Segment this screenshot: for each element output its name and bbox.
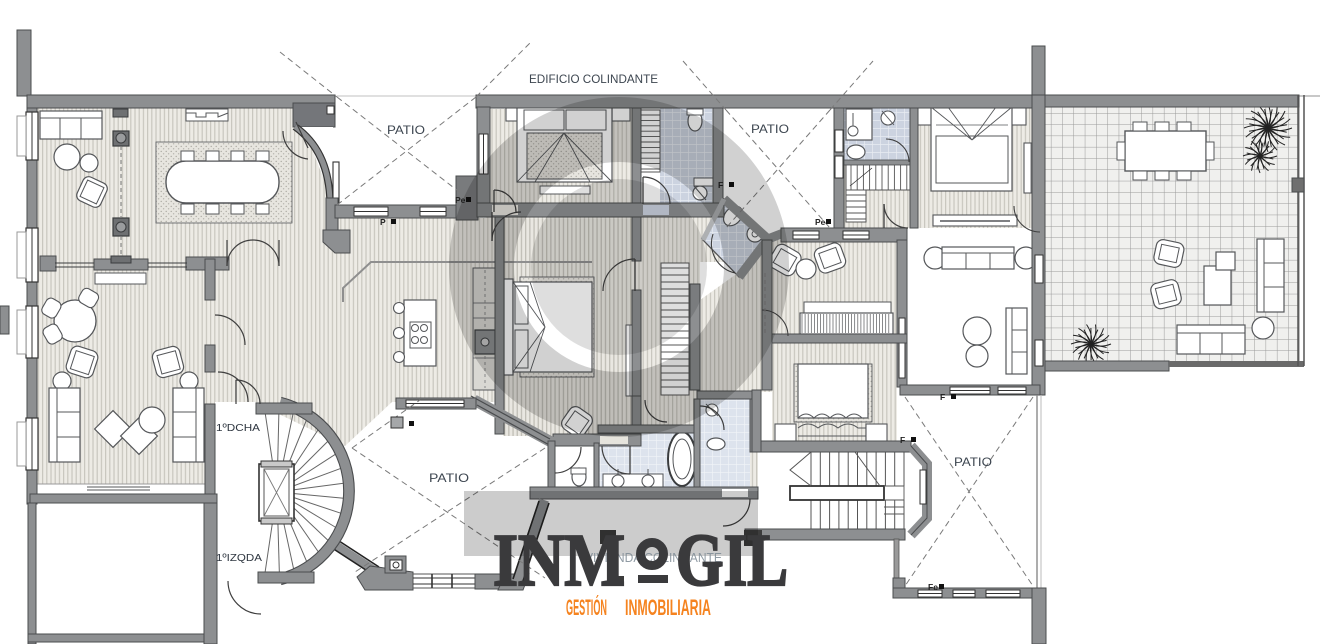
svg-text:Pe: Pe — [815, 217, 826, 227]
svg-text:GESTIÓN: GESTIÓN — [566, 595, 607, 620]
svg-text:1ºDCHA: 1ºDCHA — [216, 422, 260, 434]
svg-text:PATIO: PATIO — [954, 457, 992, 469]
svg-text:EDIFICIO COLINDANTE: EDIFICIO COLINDANTE — [529, 74, 658, 86]
svg-text:INM: INM — [493, 520, 625, 602]
svg-text:INMOBILIARIA: INMOBILIARIA — [625, 595, 711, 620]
svg-text:1ºIZQDA: 1ºIZQDA — [216, 552, 262, 564]
svg-text:PATIO: PATIO — [387, 125, 425, 137]
svg-text:PATIO: PATIO — [751, 124, 789, 136]
svg-text:GIL: GIL — [676, 520, 788, 602]
svg-text:Fe: Fe — [928, 582, 938, 592]
svg-text:PATIO: PATIO — [429, 473, 469, 485]
svg-text:P: P — [380, 217, 386, 227]
svg-text:F: F — [940, 392, 945, 402]
svg-text:F: F — [900, 435, 905, 445]
